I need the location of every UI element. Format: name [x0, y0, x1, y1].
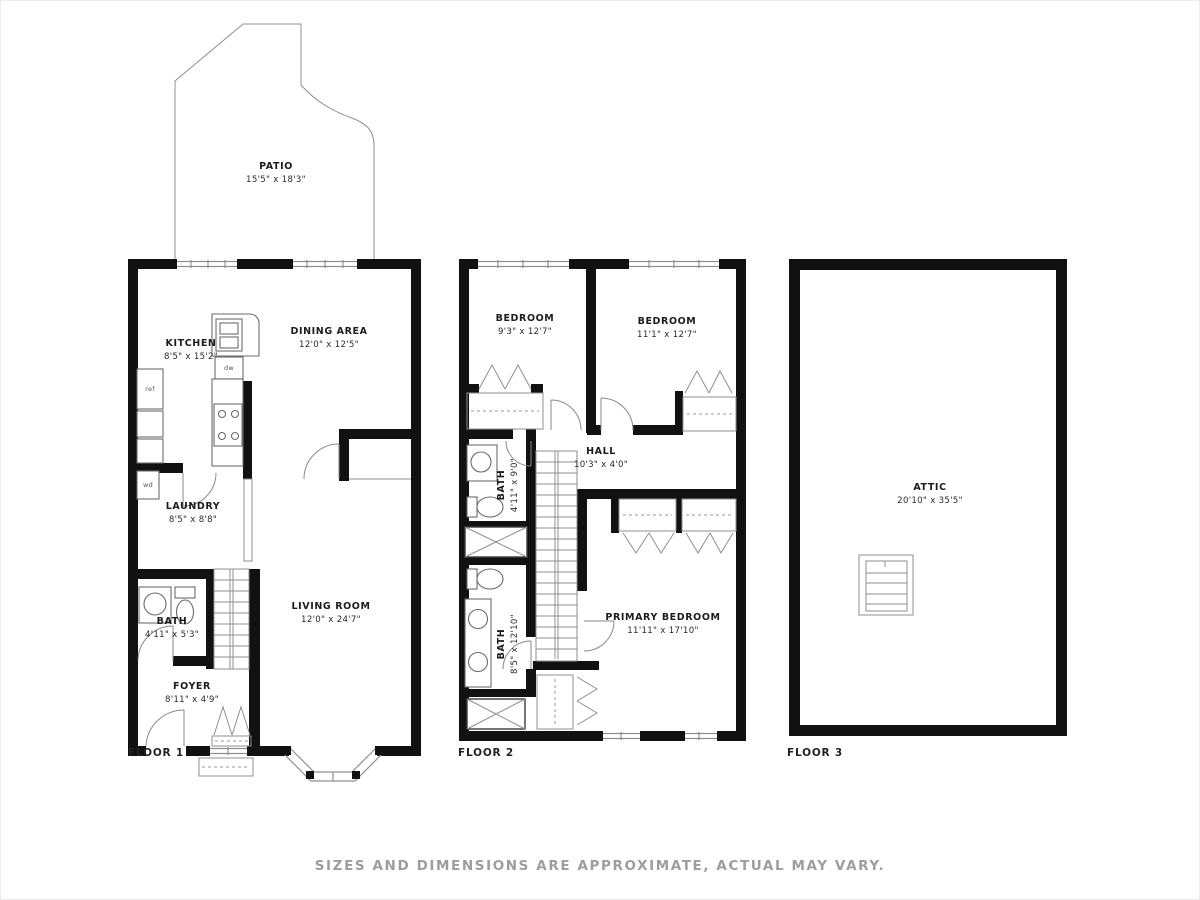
room-dims: 8'5" x 15'2" — [164, 351, 218, 363]
room-name: FOYER — [165, 680, 219, 694]
floor1-tag: FLOOR 1 — [128, 747, 184, 759]
room-dims: 20'10" x 35'5" — [897, 495, 963, 507]
patio-outline — [175, 24, 374, 259]
bath-sink — [469, 610, 488, 629]
toilet-tank — [467, 497, 477, 517]
disclaimer-text: SIZES AND DIMENSIONS ARE APPROXIMATE, AC… — [1, 858, 1199, 874]
kitchen-label: KITCHEN 8'5" x 15'2" — [164, 337, 218, 363]
floorplan-image: PATIO 15'5" x 18'3" KITCHEN 8'5" x 15'2"… — [0, 0, 1200, 900]
room-name: KITCHEN — [164, 337, 218, 351]
room-name: BATH — [145, 615, 199, 629]
attic-label: ATTIC 20'10" x 35'5" — [897, 481, 963, 507]
room-name: DINING AREA — [290, 325, 367, 339]
room-name: BATH — [495, 614, 509, 674]
room-dims: 12'0" x 24'7" — [291, 614, 370, 626]
stove — [214, 404, 242, 446]
foyer-label: FOYER 8'11" x 4'9" — [165, 680, 219, 706]
bedroom-left-label: BEDROOM 9'3" x 12'7" — [496, 312, 555, 338]
room-dims: 8'11" x 4'9" — [165, 694, 219, 706]
dw-label: dw — [224, 364, 234, 372]
room-name: LIVING ROOM — [291, 600, 370, 614]
room-name: HALL — [574, 445, 628, 459]
room-dims: 4'11" x 9'0" — [509, 458, 521, 512]
room-name: PATIO — [246, 160, 306, 174]
bath-sink — [469, 653, 488, 672]
dining-area-label: DINING AREA 12'0" x 12'5" — [290, 325, 367, 351]
bath-lower-label: BATH 8'5" x 12'10" — [495, 614, 521, 674]
room-name: BATH — [495, 458, 509, 512]
primary-bedroom-label: PRIMARY BEDROOM 11'11" x 17'10" — [605, 611, 720, 637]
room-dims: 8'5" x 12'10" — [509, 614, 521, 674]
room-dims: 8'5" x 8'8" — [166, 514, 221, 526]
bedroom-right-label: BEDROOM 11'1" x 12'7" — [637, 315, 697, 341]
laundry-label: LAUNDRY 8'5" x 8'8" — [166, 500, 221, 526]
room-dims: 11'1" x 12'7" — [637, 329, 697, 341]
room-name: PRIMARY BEDROOM — [605, 611, 720, 625]
room-name: ATTIC — [897, 481, 963, 495]
attic-hatch — [859, 555, 913, 615]
toilet-bowl — [477, 569, 503, 589]
wd-label: wd — [143, 481, 153, 489]
floor3-tag: FLOOR 3 — [787, 747, 843, 759]
room-dims: 4'11" x 5'3" — [145, 629, 199, 641]
ref-label: ref — [145, 385, 155, 393]
room-dims: 12'0" x 12'5" — [290, 339, 367, 351]
toilet-tank — [467, 569, 477, 589]
entry-stoop — [199, 758, 253, 776]
room-name: LAUNDRY — [166, 500, 221, 514]
room-name: BEDROOM — [637, 315, 697, 329]
bay-window — [282, 746, 384, 781]
floor1-plan — [128, 24, 421, 781]
room-dims: 15'5" x 18'3" — [246, 174, 306, 186]
floor2-stairs — [536, 451, 577, 661]
foyer-closet — [212, 707, 251, 746]
bath-label: BATH 4'11" x 5'3" — [145, 615, 199, 641]
room-dims: 11'11" x 17'10" — [605, 625, 720, 637]
hall-label: HALL 10'3" x 4'0" — [574, 445, 628, 471]
patio-label: PATIO 15'5" x 18'3" — [246, 160, 306, 186]
room-dims: 9'3" x 12'7" — [496, 326, 555, 338]
living-room-label: LIVING ROOM 12'0" x 24'7" — [291, 600, 370, 626]
bath-upper-label: BATH 4'11" x 9'0" — [495, 458, 521, 512]
bath-sink — [471, 452, 491, 472]
room-name: BEDROOM — [496, 312, 555, 326]
room-dims: 10'3" x 4'0" — [574, 459, 628, 471]
floor2-tag: FLOOR 2 — [458, 747, 514, 759]
toilet-tank — [175, 587, 195, 598]
bath-sink — [144, 593, 166, 615]
floor1-stairs — [214, 569, 249, 669]
